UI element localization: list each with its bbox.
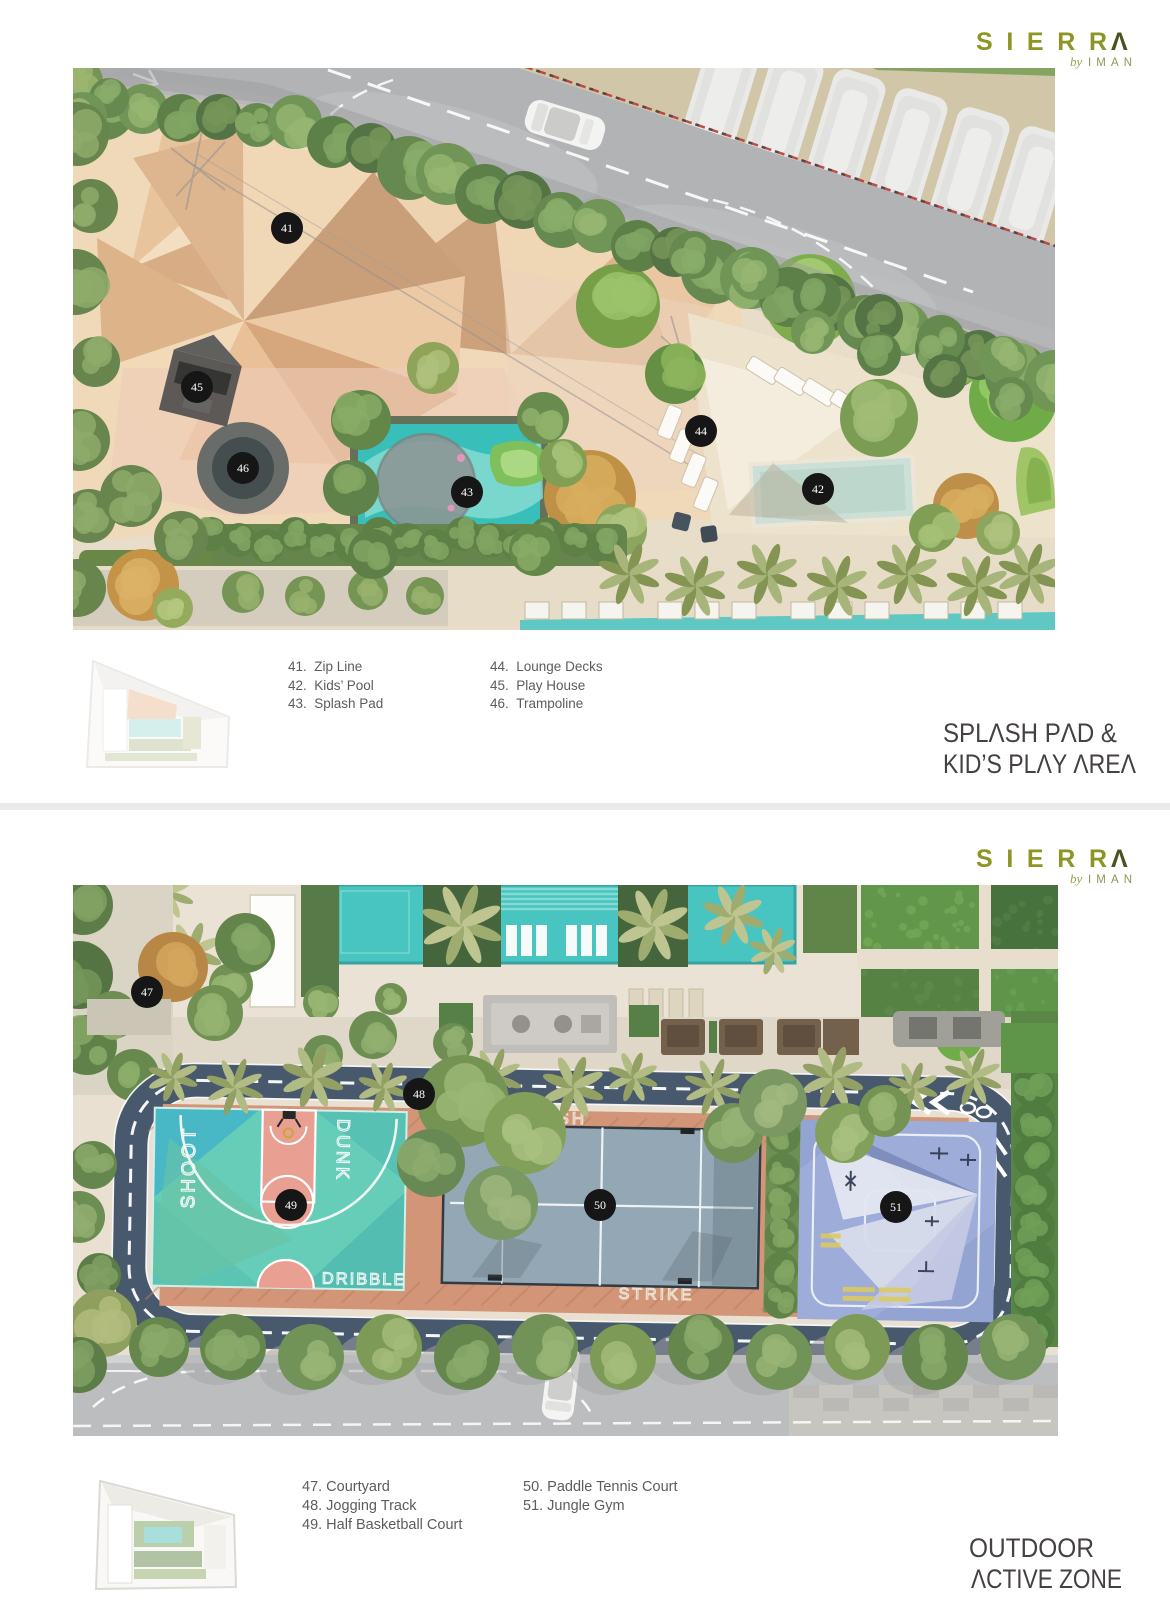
svg-text:Λ: Λ [1111,28,1128,56]
svg-text:SIERR: SIERR [976,28,1107,56]
svg-text:43: 43 [461,485,473,499]
svg-text:IMAN: IMAN [1088,57,1132,69]
svg-text:by: by [1070,54,1083,69]
svg-text:42: 42 [812,482,824,496]
svg-text:Λ: Λ [1111,845,1128,873]
svg-text:SPLΛSH PΛD &: SPLΛSH PΛD & [943,718,1117,748]
svg-text:OUTDOOR: OUTDOOR [969,1533,1094,1563]
svg-text:51: 51 [890,1200,902,1214]
svg-text:SIERR: SIERR [976,845,1107,873]
svg-text:41: 41 [281,221,293,235]
svg-text:48: 48 [413,1087,425,1101]
svg-text:IMAN: IMAN [1088,874,1132,886]
svg-text:by: by [1070,871,1083,886]
svg-text:ΛCTIVE ZONE: ΛCTIVE ZONE [971,1564,1122,1593]
svg-text:45: 45 [191,380,203,394]
svg-text:46: 46 [237,461,249,475]
svg-text:44: 44 [695,424,707,438]
svg-text:50: 50 [594,1198,606,1212]
svg-text:47: 47 [141,985,153,999]
svg-text:KID’S PLΛY ΛREΛ: KID’S PLΛY ΛREΛ [943,749,1136,779]
svg-text:49: 49 [285,1198,297,1212]
